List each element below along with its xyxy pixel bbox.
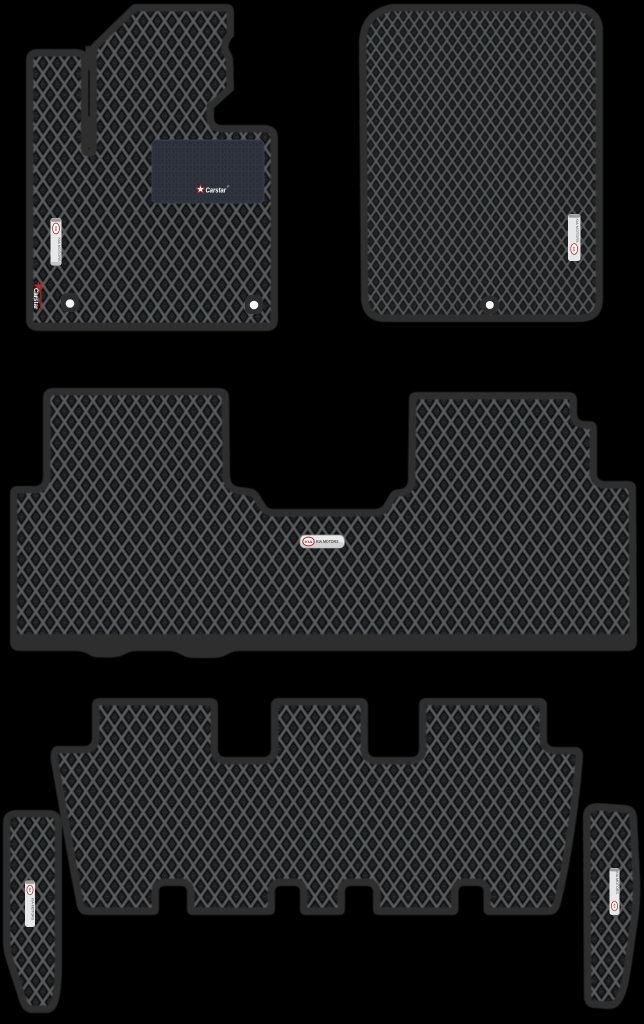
svg-text:KIA: KIA (612, 904, 616, 909)
svg-text:KIA: KIA (572, 247, 576, 252)
svg-text:Carstar: Carstar (32, 288, 39, 310)
svg-text:KIA MOTORS: KIA MOTORS (31, 898, 35, 921)
svg-text:KIA MOTORS: KIA MOTORS (575, 219, 580, 244)
svg-text:KIA MOTORS: KIA MOTORS (615, 872, 619, 895)
svg-text:KIA MOTORS: KIA MOTORS (316, 539, 339, 544)
svg-text:KIA: KIA (54, 226, 58, 231)
svg-text:KIA MOTORS: KIA MOTORS (57, 238, 62, 263)
svg-text:Carstar: Carstar (206, 186, 227, 195)
svg-text:KIA: KIA (28, 888, 32, 893)
svg-text:KIA: KIA (305, 540, 314, 544)
